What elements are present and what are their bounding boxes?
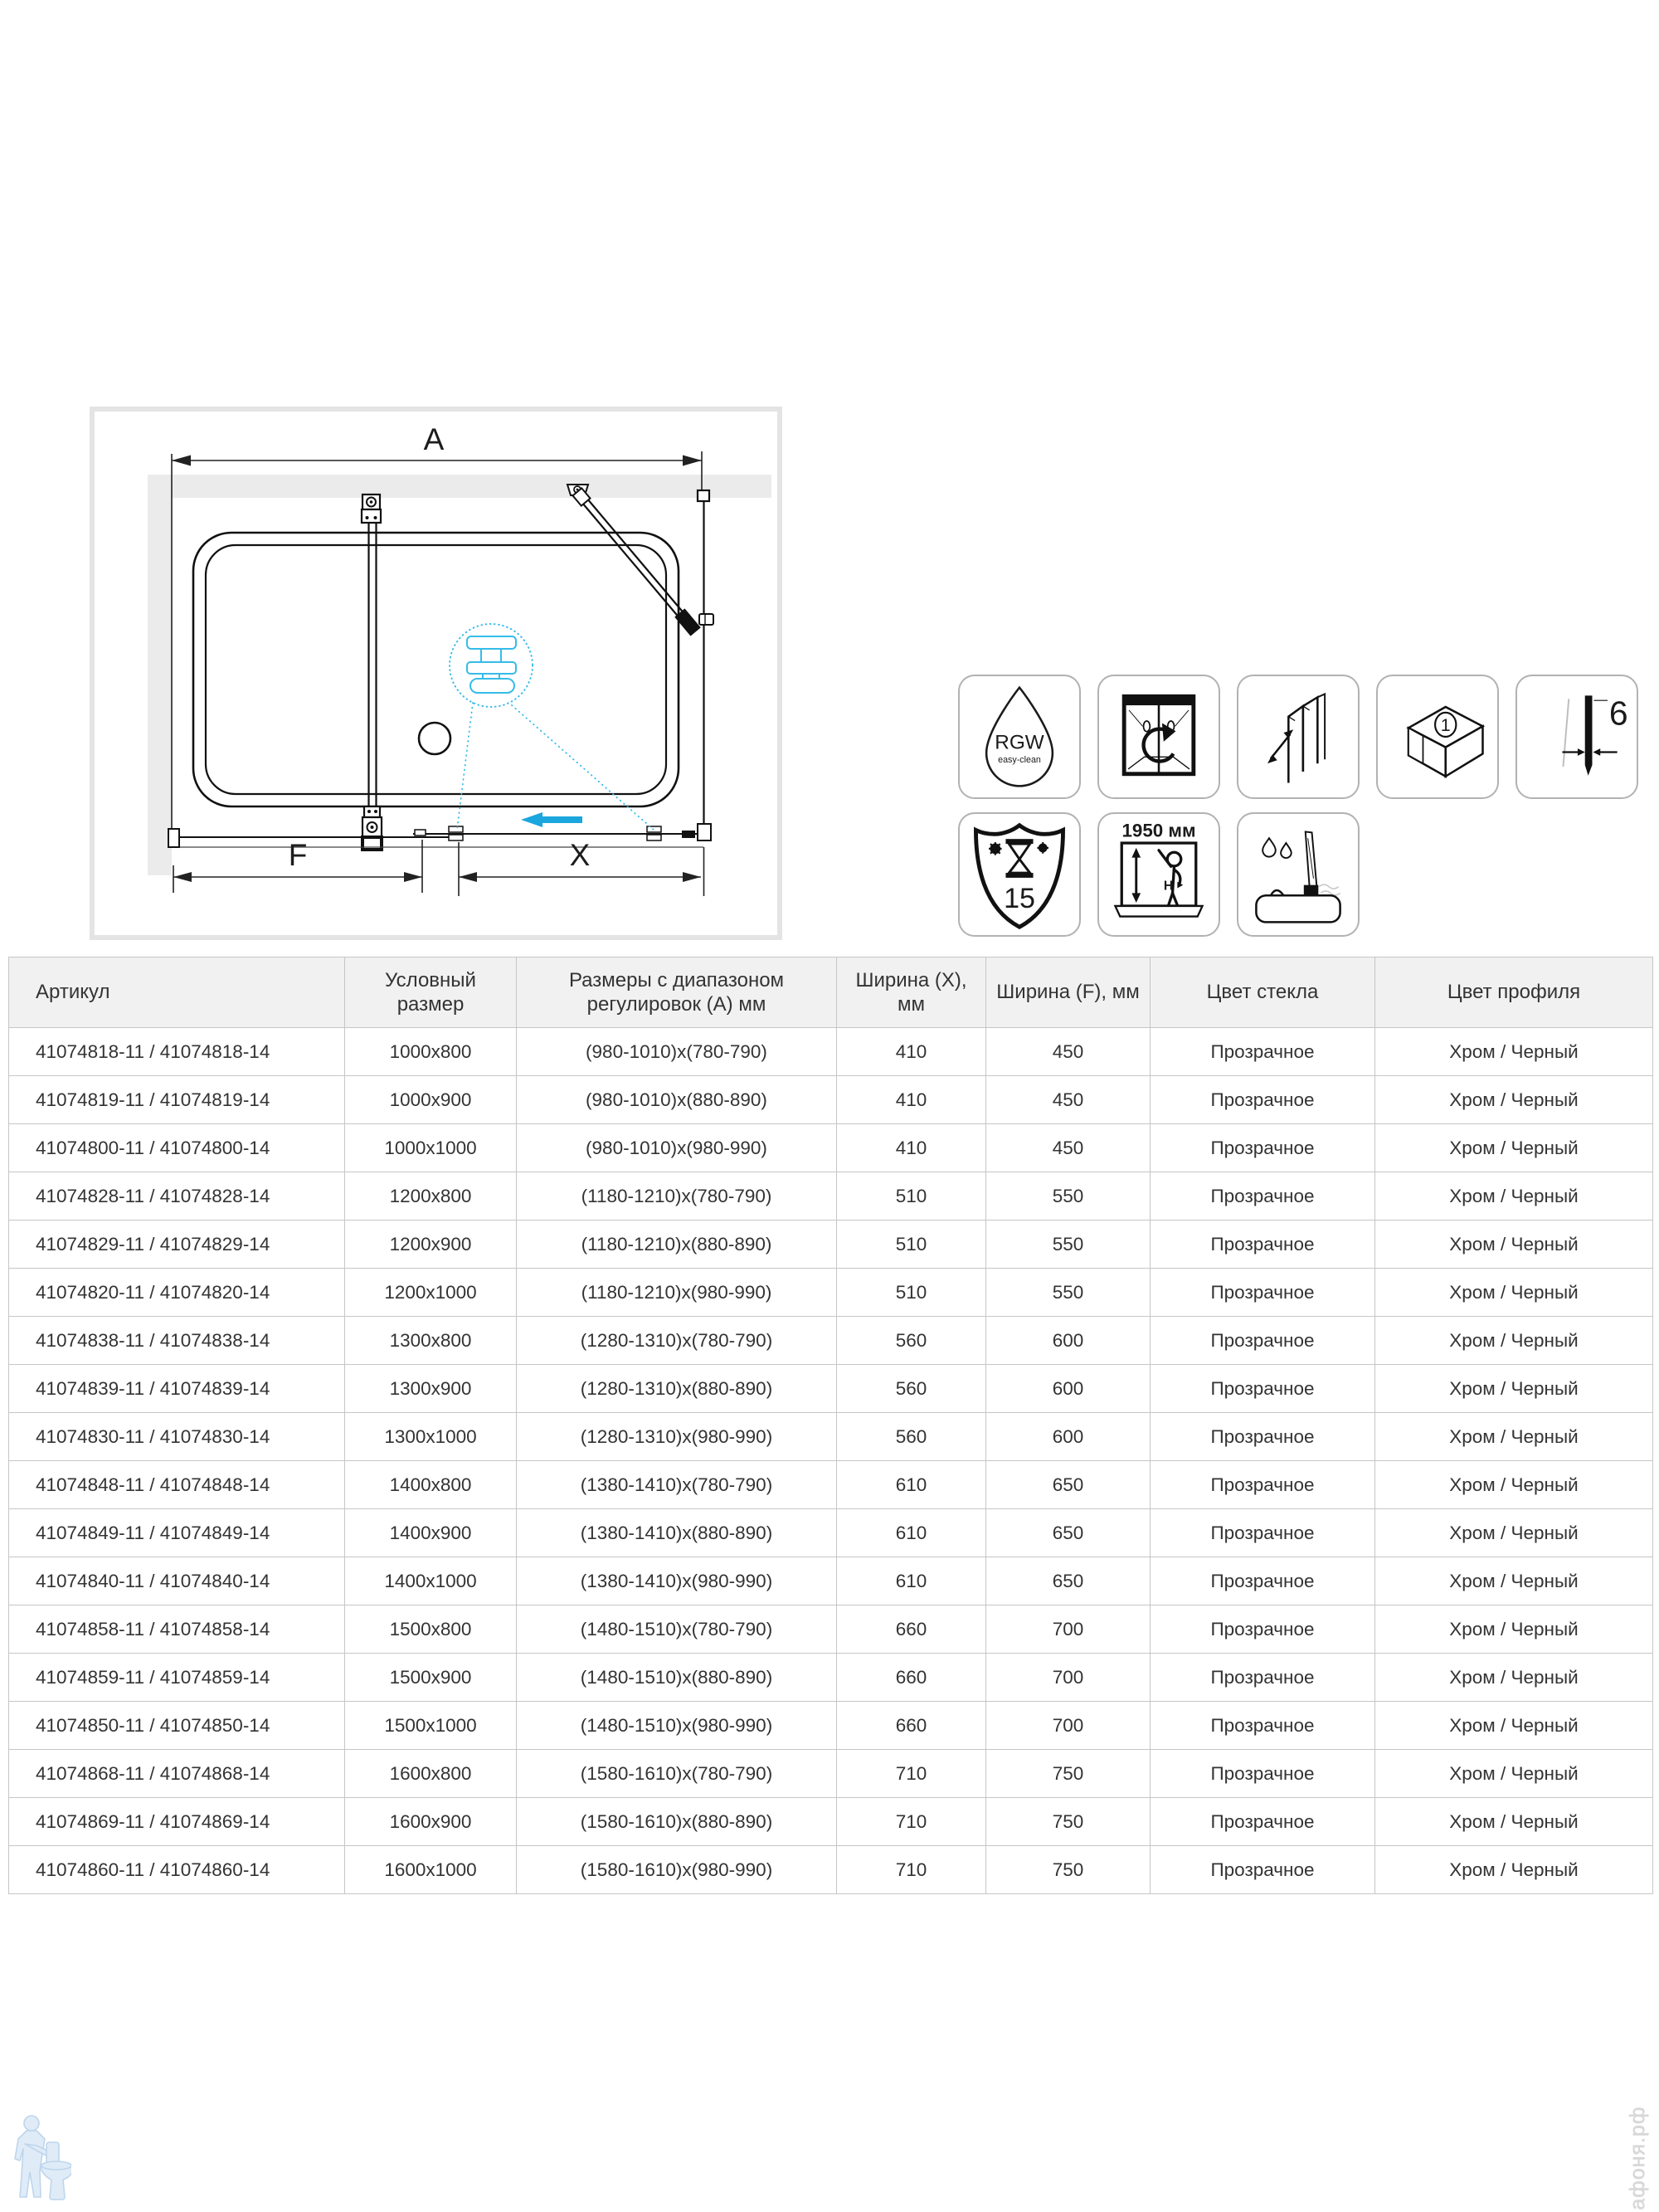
site-watermark: афоня.рф [1626, 2114, 1650, 2210]
height-icon: 1950 мм H [1099, 814, 1219, 935]
table-cell: 1300x1000 [345, 1413, 517, 1461]
table-cell: 510 [837, 1269, 986, 1317]
table-cell: Прозрачное [1151, 1557, 1375, 1605]
table-cell: Хром / Черный [1375, 1124, 1653, 1172]
table-cell: 41074869-11 / 41074869-14 [9, 1798, 345, 1846]
table-cell: (1580-1610)x(780-790) [517, 1750, 837, 1798]
table-cell: Хром / Черный [1375, 1702, 1653, 1750]
plumber-mascot-icon [7, 2111, 71, 2207]
table-cell: 41074829-11 / 41074829-14 [9, 1220, 345, 1269]
label-x: X [570, 838, 591, 872]
table-cell: Хром / Черный [1375, 1798, 1653, 1846]
table-cell: Прозрачное [1151, 1509, 1375, 1557]
table-cell: Хром / Черный [1375, 1846, 1653, 1894]
header-adjustment-range: Размеры с диапазоном регулировок (А) мм [517, 957, 837, 1028]
header-width-f: Ширина (F), мм [986, 957, 1151, 1028]
table-row: 41074818-11 / 41074818-141000x800(980-10… [9, 1028, 1653, 1076]
table-row: 41074838-11 / 41074838-141300x800(1280-1… [9, 1317, 1653, 1365]
table-cell: (1380-1410)x(980-990) [517, 1557, 837, 1605]
table-cell: Хром / Черный [1375, 1220, 1653, 1269]
table-cell: Хром / Черный [1375, 1028, 1653, 1076]
table-cell: 1300x800 [345, 1317, 517, 1365]
table-row: 41074869-11 / 41074869-141600x900(1580-1… [9, 1798, 1653, 1846]
table-cell: Хром / Черный [1375, 1172, 1653, 1220]
table-cell: Прозрачное [1151, 1220, 1375, 1269]
table-cell: Хром / Черный [1375, 1461, 1653, 1509]
table-cell: 660 [837, 1654, 986, 1702]
table-cell: (1480-1510)x(780-790) [517, 1605, 837, 1654]
glass-thickness-icon: 6 [1517, 676, 1637, 797]
table-cell: 41074849-11 / 41074849-14 [9, 1509, 345, 1557]
table-cell: 410 [837, 1076, 986, 1124]
roller-detail-callout [450, 624, 654, 830]
table-row: 41074858-11 / 41074858-141500x800(1480-1… [9, 1605, 1653, 1654]
table-cell: 1400x1000 [345, 1557, 517, 1605]
splash-guard-icon [1238, 814, 1358, 935]
table-cell: Прозрачное [1151, 1028, 1375, 1076]
table-cell: 1500x800 [345, 1605, 517, 1654]
warranty-shield-icon: 15 [960, 814, 1079, 935]
icon-warranty-15: 15 [958, 812, 1081, 937]
table-cell: Хром / Черный [1375, 1557, 1653, 1605]
technical-drawing: A [90, 407, 782, 940]
table-cell: 1400x900 [345, 1509, 517, 1557]
drawing-canvas: A [90, 407, 782, 940]
table-row: 41074800-11 / 41074800-141000x1000(980-1… [9, 1124, 1653, 1172]
table-cell: 1000x1000 [345, 1124, 517, 1172]
table-cell: Хром / Черный [1375, 1605, 1653, 1654]
table-cell: Прозрачное [1151, 1846, 1375, 1894]
table-row: 41074839-11 / 41074839-141300x900(1280-1… [9, 1365, 1653, 1413]
table-cell: (1580-1610)x(880-890) [517, 1798, 837, 1846]
table-cell: 750 [986, 1750, 1151, 1798]
table-cell: (1580-1610)x(980-990) [517, 1846, 837, 1894]
table-cell: (1380-1410)x(880-890) [517, 1509, 837, 1557]
header-glass-color: Цвет стекла [1151, 957, 1375, 1028]
table-cell: 41074858-11 / 41074858-14 [9, 1605, 345, 1654]
table-cell: 1200x800 [345, 1172, 517, 1220]
table-cell: 610 [837, 1461, 986, 1509]
icon-one-package: 1 [1376, 675, 1499, 799]
table-cell: 41074840-11 / 41074840-14 [9, 1557, 345, 1605]
table-cell: (1180-1210)x(880-890) [517, 1220, 837, 1269]
header-width-x: Ширина (X), мм [837, 957, 986, 1028]
table-cell: Прозрачное [1151, 1076, 1375, 1124]
table-cell: 710 [837, 1750, 986, 1798]
table-cell: Прозрачное [1151, 1269, 1375, 1317]
table-cell: 410 [837, 1028, 986, 1076]
table-cell: 41074830-11 / 41074830-14 [9, 1413, 345, 1461]
table-cell: 450 [986, 1076, 1151, 1124]
table-cell: Хром / Черный [1375, 1076, 1653, 1124]
icon-reversible-installation [1097, 675, 1220, 799]
table-cell: 1600x1000 [345, 1846, 517, 1894]
table-row: 41074840-11 / 41074840-141400x1000(1380-… [9, 1557, 1653, 1605]
table-cell: Прозрачное [1151, 1702, 1375, 1750]
table-cell: 510 [837, 1172, 986, 1220]
table-row: 41074830-11 / 41074830-141300x1000(1280-… [9, 1413, 1653, 1461]
table-cell: 600 [986, 1365, 1151, 1413]
table-cell: Прозрачное [1151, 1172, 1375, 1220]
table-cell: Хром / Черный [1375, 1413, 1653, 1461]
table-row: 41074849-11 / 41074849-141400x900(1380-1… [9, 1509, 1653, 1557]
header-article: Артикул [9, 957, 345, 1028]
table-cell: 710 [837, 1798, 986, 1846]
header-nominal-size: Условный размер [345, 957, 517, 1028]
table-cell: 510 [837, 1220, 986, 1269]
table-cell: Хром / Черный [1375, 1509, 1653, 1557]
table-row: 41074868-11 / 41074868-141600x800(1580-1… [9, 1750, 1653, 1798]
table-cell: 660 [837, 1702, 986, 1750]
table-cell: 610 [837, 1509, 986, 1557]
table-row: 41074820-11 / 41074820-141200x1000(1180-… [9, 1269, 1653, 1317]
table-cell: 550 [986, 1172, 1151, 1220]
spec-table: Артикул Условный размер Размеры с диапаз… [8, 957, 1653, 1894]
h-letter: H [1164, 879, 1173, 893]
reversible-door-icon [1099, 676, 1219, 797]
table-row: 41074829-11 / 41074829-141200x900(1180-1… [9, 1220, 1653, 1269]
dimension-f: F [173, 838, 422, 893]
table-cell: (1280-1310)x(780-790) [517, 1317, 837, 1365]
table-cell: Хром / Черный [1375, 1269, 1653, 1317]
table-cell: Прозрачное [1151, 1605, 1375, 1654]
table-cell: (1380-1410)x(780-790) [517, 1461, 837, 1509]
table-cell: 410 [837, 1124, 986, 1172]
table-cell: 1200x1000 [345, 1269, 517, 1317]
table-cell: 41074819-11 / 41074819-14 [9, 1076, 345, 1124]
table-cell: Прозрачное [1151, 1798, 1375, 1846]
table-cell: 650 [986, 1557, 1151, 1605]
table-cell: 650 [986, 1509, 1151, 1557]
label-a: A [424, 422, 445, 456]
table-cell: 41074860-11 / 41074860-14 [9, 1846, 345, 1894]
table-cell: 1600x800 [345, 1750, 517, 1798]
divider-glass [362, 495, 382, 850]
table-cell: 700 [986, 1654, 1151, 1702]
table-cell: 41074820-11 / 41074820-14 [9, 1269, 345, 1317]
drain-circle [419, 723, 450, 754]
table-cell: 1000x900 [345, 1076, 517, 1124]
table-cell: Прозрачное [1151, 1413, 1375, 1461]
table-cell: 550 [986, 1269, 1151, 1317]
icon-glass-thickness: 6 [1515, 675, 1638, 799]
table-cell: 750 [986, 1846, 1151, 1894]
table-cell: 41074800-11 / 41074800-14 [9, 1124, 345, 1172]
table-cell: Прозрачное [1151, 1317, 1375, 1365]
table-cell: (1480-1510)x(980-990) [517, 1702, 837, 1750]
table-cell: 700 [986, 1702, 1151, 1750]
table-cell: 1500x900 [345, 1654, 517, 1702]
side-glass-panel [698, 490, 709, 824]
warranty-years: 15 [1004, 883, 1035, 914]
table-cell: 660 [837, 1605, 986, 1654]
bottom-rail [168, 824, 711, 847]
header-profile-color: Цвет профиля [1375, 957, 1653, 1028]
table-cell: 600 [986, 1413, 1151, 1461]
table-cell: Хром / Черный [1375, 1317, 1653, 1365]
thickness-value: 6 [1609, 694, 1628, 732]
slide-direction-arrow [521, 812, 582, 827]
table-cell: 600 [986, 1317, 1151, 1365]
table-cell: 41074828-11 / 41074828-14 [9, 1172, 345, 1220]
table-cell: 41074818-11 / 41074818-14 [9, 1028, 345, 1076]
table-cell: 1200x900 [345, 1220, 517, 1269]
table-row: 41074860-11 / 41074860-141600x1000(1580-… [9, 1846, 1653, 1894]
table-cell: 750 [986, 1798, 1151, 1846]
table-cell: 450 [986, 1028, 1151, 1076]
table-cell: 560 [837, 1365, 986, 1413]
easy-clean-text: easy-clean [998, 755, 1041, 765]
table-cell: 1000x800 [345, 1028, 517, 1076]
package-count: 1 [1441, 715, 1451, 735]
height-value: 1950 мм [1121, 820, 1195, 840]
table-cell: 41074848-11 / 41074848-14 [9, 1461, 345, 1509]
table-cell: (980-1010)x(980-990) [517, 1124, 837, 1172]
table-cell: Хром / Черный [1375, 1654, 1653, 1702]
table-cell: (1280-1310)x(880-890) [517, 1365, 837, 1413]
table-cell: 610 [837, 1557, 986, 1605]
table-cell: Прозрачное [1151, 1124, 1375, 1172]
table-cell: 41074850-11 / 41074850-14 [9, 1702, 345, 1750]
table-cell: 560 [837, 1317, 986, 1365]
table-cell: (980-1010)x(880-890) [517, 1076, 837, 1124]
table-cell: Прозрачное [1151, 1654, 1375, 1702]
icon-rgw-easy-clean: RGW easy-clean [958, 675, 1081, 799]
table-cell: (1280-1310)x(980-990) [517, 1413, 837, 1461]
support-bar [567, 485, 713, 636]
table-cell: 1500x1000 [345, 1702, 517, 1750]
table-cell: Прозрачное [1151, 1750, 1375, 1798]
table-cell: Хром / Черный [1375, 1750, 1653, 1798]
table-cell: 550 [986, 1220, 1151, 1269]
table-row: 41074828-11 / 41074828-141200x800(1180-1… [9, 1172, 1653, 1220]
table-cell: 560 [837, 1413, 986, 1461]
table-cell: 650 [986, 1461, 1151, 1509]
shower-tray [193, 533, 679, 806]
rgw-text: RGW [995, 732, 1044, 754]
table-cell: 1300x900 [345, 1365, 517, 1413]
table-cell: 710 [837, 1846, 986, 1894]
icon-height-1950: 1950 мм H [1097, 812, 1220, 937]
label-f: F [289, 838, 308, 872]
table-cell: 41074838-11 / 41074838-14 [9, 1317, 345, 1365]
table-cell: 1600x900 [345, 1798, 517, 1846]
icon-adjustment-profile [1237, 675, 1360, 799]
plumber-mascot-watermark [7, 2111, 71, 2207]
table-cell: (1180-1210)x(780-790) [517, 1172, 837, 1220]
corner-profile-icon [1238, 676, 1358, 797]
table-row: 41074859-11 / 41074859-141500x900(1480-1… [9, 1654, 1653, 1702]
table-row: 41074848-11 / 41074848-141400x800(1380-1… [9, 1461, 1653, 1509]
table-cell: 1400x800 [345, 1461, 517, 1509]
table-cell: Прозрачное [1151, 1365, 1375, 1413]
table-cell: (980-1010)x(780-790) [517, 1028, 837, 1076]
icon-splash-guard [1237, 812, 1360, 937]
table-cell: 450 [986, 1124, 1151, 1172]
table-cell: (1480-1510)x(880-890) [517, 1654, 837, 1702]
table-row: 41074819-11 / 41074819-141000x900(980-10… [9, 1076, 1653, 1124]
table-cell: Прозрачное [1151, 1461, 1375, 1509]
table-row: 41074850-11 / 41074850-141500x1000(1480-… [9, 1702, 1653, 1750]
table-cell: 41074859-11 / 41074859-14 [9, 1654, 345, 1702]
package-box-icon: 1 [1378, 676, 1497, 797]
table-header-row: Артикул Условный размер Размеры с диапаз… [9, 957, 1653, 1028]
table-cell: 41074868-11 / 41074868-14 [9, 1750, 345, 1798]
table-cell: Хром / Черный [1375, 1365, 1653, 1413]
table-cell: 41074839-11 / 41074839-14 [9, 1365, 345, 1413]
table-cell: 700 [986, 1605, 1151, 1654]
table-cell: (1180-1210)x(980-990) [517, 1269, 837, 1317]
